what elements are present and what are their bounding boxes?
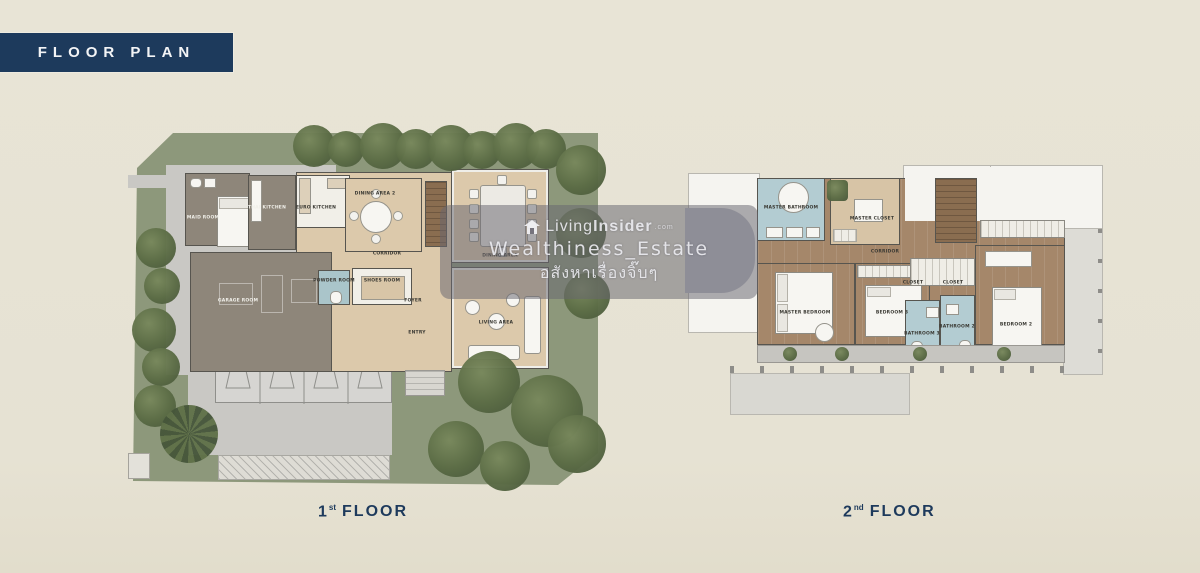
caption-word: FLOOR (342, 503, 408, 520)
watermark-brand: LivingInsider.com (524, 218, 673, 236)
balcony-planter (835, 347, 849, 361)
room-label-dining2: DINING AREA 2 (355, 192, 396, 197)
cabinet-row (980, 220, 1065, 238)
brand-tld: .com (655, 224, 674, 231)
room-label-bedroom2: BEDROOM 2 (1000, 323, 1032, 328)
room-label-euro-kitchen: EURO KITCHEN (296, 206, 336, 211)
room-label-powder: POWDER ROOM (313, 279, 355, 284)
colonnade-row (730, 366, 1065, 373)
terrace-top-right-inner (992, 167, 1101, 227)
tree (132, 308, 176, 352)
livinginsider-logo-icon (524, 220, 540, 234)
euro-kitchen (296, 175, 350, 228)
room-label-shoes: SHOES ROOM (364, 279, 400, 284)
watermark-line2: Wealthiness_Estate (489, 238, 709, 260)
staircase-2f (935, 178, 977, 243)
entry-steps (405, 370, 445, 396)
tree (328, 131, 364, 167)
watermark-line3: อสังหาเรื่องจิ๊บๆ (540, 261, 658, 286)
balcony (757, 345, 1065, 363)
room-label-thai-kitchen: THAI KITCHEN (248, 206, 286, 211)
room-label-garage: GARAGE ROOM (218, 299, 258, 304)
sofa (524, 296, 541, 354)
caption-ordinal: st (329, 503, 336, 512)
floor-plan-badge: FLOOR PLAN (0, 33, 233, 72)
tree (556, 145, 606, 195)
ramp-hatch (218, 455, 390, 480)
room-label-bathroom2: BATHROOM 2 (939, 325, 975, 330)
caption-ordinal: nd (854, 503, 864, 512)
caption-number: 2 (843, 503, 854, 520)
room-label-master-bedroom: MASTER BEDROOM (779, 311, 830, 316)
planter-tree (827, 180, 848, 201)
powder-room (318, 270, 350, 305)
room-label-bedroom3: BEDROOM 3 (876, 311, 908, 316)
floor-plan-badge-label: FLOOR PLAN (38, 44, 196, 61)
apron-bottom-left (730, 373, 910, 415)
tree (548, 415, 606, 473)
shoes-room (352, 268, 412, 305)
maid-room (185, 173, 250, 246)
round-chair (815, 323, 834, 342)
balcony-planter (997, 347, 1011, 361)
room-label-entry: ENTRY (408, 331, 425, 336)
caption-word: FLOOR (870, 503, 936, 520)
tree (428, 421, 484, 477)
walkway-right (1063, 228, 1103, 375)
room-label-maid: MAID ROOM (187, 216, 219, 221)
thai-kitchen (248, 175, 296, 250)
second-floor-caption: 2ndFLOOR (843, 503, 936, 521)
room-label-bathroom3: BATHROOM 3 (904, 332, 940, 337)
room-label-closet-b: CLOSET (943, 281, 963, 286)
tree (480, 441, 530, 491)
armchair (465, 300, 480, 315)
first-floor-caption: 1stFLOOR (318, 503, 408, 521)
garage-room (190, 252, 332, 372)
palm-tree (160, 405, 218, 463)
room-label-foyer: FOYER (404, 299, 422, 304)
balcony-planter (783, 347, 797, 361)
room-label-closet-a: CLOSET (903, 281, 923, 286)
tree (142, 348, 180, 386)
room-label-living: LIVING AREA (479, 321, 513, 326)
watermark: LivingInsider.com Wealthiness_Estate อสั… (440, 205, 758, 299)
brand-living: Living (545, 218, 593, 236)
brand-insider: Insider (593, 218, 652, 236)
room-label-corridor-2f: CORRIDOR (871, 250, 899, 255)
room-label-corridor-1f: CORRIDOR (373, 252, 401, 257)
room-label-master-closet: MASTER CLOSET (850, 217, 894, 222)
tree (144, 268, 180, 304)
tree (136, 228, 176, 268)
room-label-master-bathroom: MASTER BATHROOM (764, 206, 818, 211)
caption-number: 1 (318, 503, 329, 520)
balcony-planter (913, 347, 927, 361)
round-dining-table (360, 201, 392, 233)
utility-pad (128, 453, 150, 479)
first-floor-plan: MAID ROOM THAI KITCHEN EURO KITCHEN DINI… (128, 123, 603, 490)
bench (985, 251, 1032, 267)
